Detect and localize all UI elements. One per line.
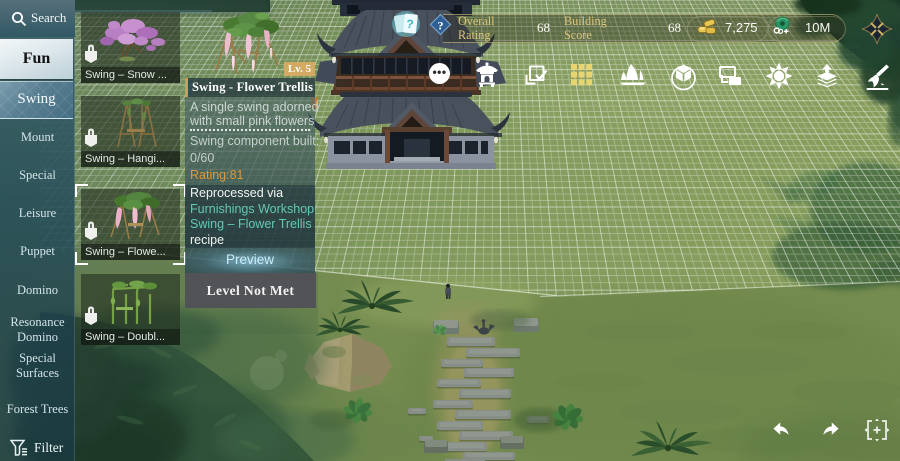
svg-text:?: ? xyxy=(438,19,444,33)
svg-text:?: ? xyxy=(406,17,415,32)
